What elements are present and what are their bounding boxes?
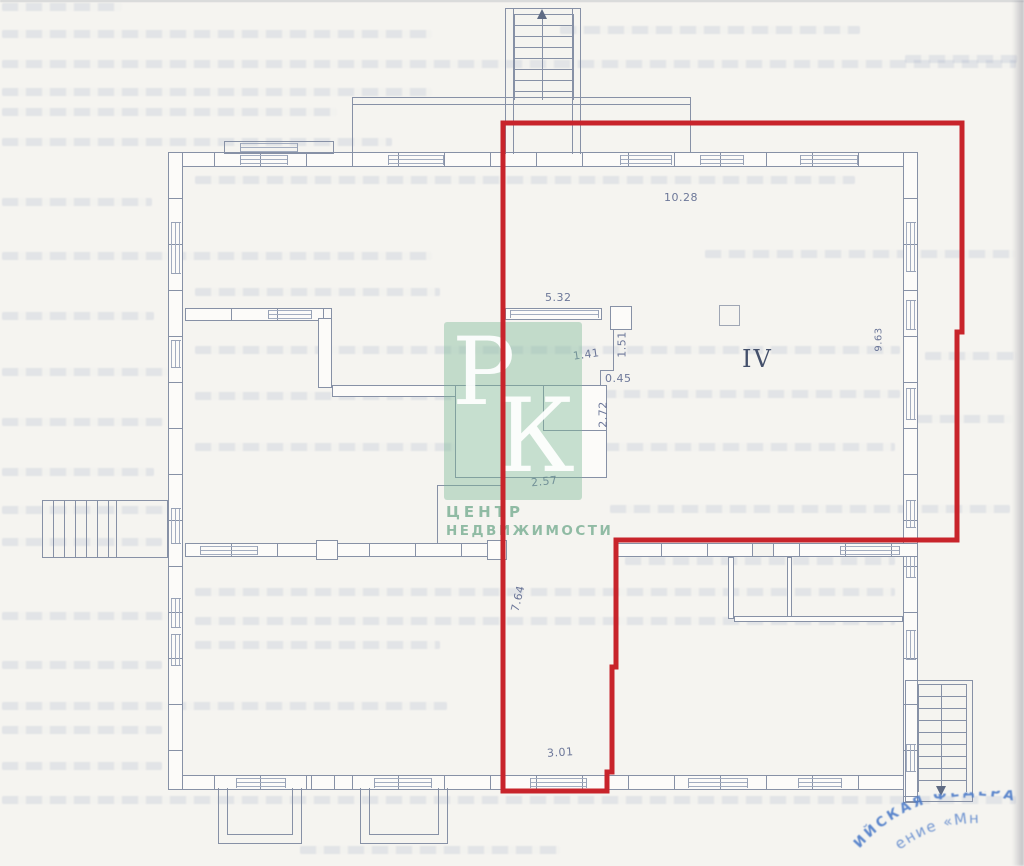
bleed-through-line bbox=[2, 612, 182, 620]
bleed-through-line bbox=[2, 30, 432, 38]
bleed-through-line bbox=[2, 726, 162, 734]
bleed-through-line bbox=[2, 3, 122, 11]
bleed-through-line bbox=[905, 55, 1017, 63]
bleed-through-line bbox=[195, 641, 440, 649]
bleed-through-line bbox=[195, 346, 900, 354]
bleed-through-line bbox=[2, 60, 1016, 68]
window-icon bbox=[236, 778, 286, 788]
window-icon bbox=[906, 222, 916, 272]
stair-up-arrow-icon bbox=[537, 9, 547, 19]
terrace-line bbox=[352, 97, 353, 152]
window-icon bbox=[171, 340, 181, 368]
door-opening bbox=[311, 776, 335, 789]
bleed-through-line bbox=[2, 88, 432, 96]
bleed-through-line bbox=[925, 352, 1017, 360]
column bbox=[316, 540, 338, 560]
stair-steps-right bbox=[918, 684, 967, 792]
bleed-through-line bbox=[195, 176, 855, 184]
window-icon bbox=[688, 778, 748, 788]
stamp-inner-text: ение «Мн bbox=[890, 809, 982, 854]
window-icon bbox=[620, 155, 672, 165]
bleed-through-line bbox=[2, 252, 432, 260]
bottom-bay-inner bbox=[227, 788, 293, 835]
scanned-floor-plan-page: IV 10.28 5.32 1.51 1.41 0.45 2.72 2.57 9… bbox=[0, 0, 1024, 866]
window-icon bbox=[374, 778, 432, 788]
sanitary-unit bbox=[455, 385, 607, 478]
room-marker-square bbox=[719, 305, 740, 326]
stair-steps-top bbox=[514, 14, 574, 100]
door-opening bbox=[752, 544, 774, 556]
window-icon bbox=[906, 630, 916, 660]
bleed-through-line bbox=[300, 846, 560, 854]
dimension-label: 2.72 bbox=[597, 400, 610, 430]
dimension-label: 2.57 bbox=[530, 474, 558, 490]
bottom-bay-inner bbox=[369, 788, 439, 835]
bleed-through-line bbox=[916, 415, 1012, 423]
window-icon bbox=[906, 300, 916, 330]
window-icon bbox=[510, 310, 599, 318]
interior-wall bbox=[787, 557, 792, 617]
window-icon bbox=[268, 310, 312, 319]
window-icon bbox=[906, 556, 916, 578]
window-icon bbox=[530, 778, 587, 788]
column bbox=[610, 306, 632, 330]
partition-line bbox=[600, 370, 614, 371]
terrace-line bbox=[690, 97, 691, 152]
bleed-through-line bbox=[2, 418, 164, 426]
bleed-through-line bbox=[195, 288, 440, 296]
stair-rail bbox=[505, 8, 506, 154]
bleed-through-line bbox=[2, 198, 152, 206]
bleed-through-line bbox=[625, 557, 895, 565]
terrace-line bbox=[352, 104, 690, 105]
window-icon bbox=[906, 388, 916, 420]
bleed-through-line bbox=[2, 661, 162, 669]
dimension-label: 0.45 bbox=[605, 372, 632, 385]
partition-line bbox=[600, 370, 601, 385]
bleed-through-line bbox=[600, 390, 900, 398]
dimension-label: 10.28 bbox=[664, 191, 698, 204]
window-icon bbox=[840, 546, 900, 555]
bleed-through-line bbox=[2, 108, 337, 116]
bleed-through-line bbox=[2, 368, 178, 376]
stair-center-line bbox=[941, 684, 942, 788]
dimension-label: 9.63 bbox=[874, 323, 885, 357]
dimension-label: 7.64 bbox=[508, 580, 529, 616]
column bbox=[487, 540, 507, 560]
bleed-through-line bbox=[610, 505, 1010, 513]
window-icon bbox=[200, 546, 258, 555]
interior-wall bbox=[734, 616, 903, 622]
stair-rail bbox=[580, 8, 581, 154]
bleed-through-line bbox=[560, 26, 860, 34]
bleed-through-line bbox=[2, 702, 447, 710]
terrace-line bbox=[352, 97, 690, 98]
window-icon bbox=[171, 598, 181, 628]
dimension-label: 1.41 bbox=[572, 346, 600, 363]
bleed-through-line bbox=[2, 762, 162, 770]
window-icon bbox=[171, 508, 181, 544]
window-icon bbox=[700, 155, 744, 165]
window-icon bbox=[906, 500, 916, 528]
bleed-through-line bbox=[2, 312, 154, 320]
interior-wall bbox=[728, 557, 734, 619]
bleed-through-line bbox=[2, 796, 1016, 804]
room-number-label: IV bbox=[742, 345, 773, 373]
window-icon bbox=[171, 222, 181, 274]
bleed-through-line bbox=[2, 468, 154, 476]
dimension-label: 1.51 bbox=[616, 330, 629, 360]
interior-wall bbox=[332, 385, 457, 397]
window-icon bbox=[240, 143, 298, 152]
stair-steps-left bbox=[42, 500, 117, 558]
bleed-through-line bbox=[705, 250, 1015, 258]
window-icon bbox=[798, 778, 842, 788]
stair-center-line bbox=[542, 16, 543, 100]
scan-edge-top bbox=[0, 0, 1024, 2]
unit-inner-line bbox=[543, 386, 544, 430]
interior-wall bbox=[318, 318, 332, 388]
dimension-label: 3.01 bbox=[547, 745, 574, 760]
dimension-label: 5.32 bbox=[545, 291, 572, 304]
window-icon bbox=[800, 155, 858, 165]
window-icon bbox=[171, 634, 181, 666]
small-room bbox=[437, 485, 503, 545]
stair-down-arrow-icon bbox=[936, 786, 946, 796]
window-icon bbox=[388, 155, 444, 165]
scan-edge-right bbox=[1012, 0, 1024, 866]
partition-line bbox=[613, 330, 614, 370]
unit-inner-line bbox=[543, 430, 607, 431]
window-icon bbox=[240, 155, 288, 165]
